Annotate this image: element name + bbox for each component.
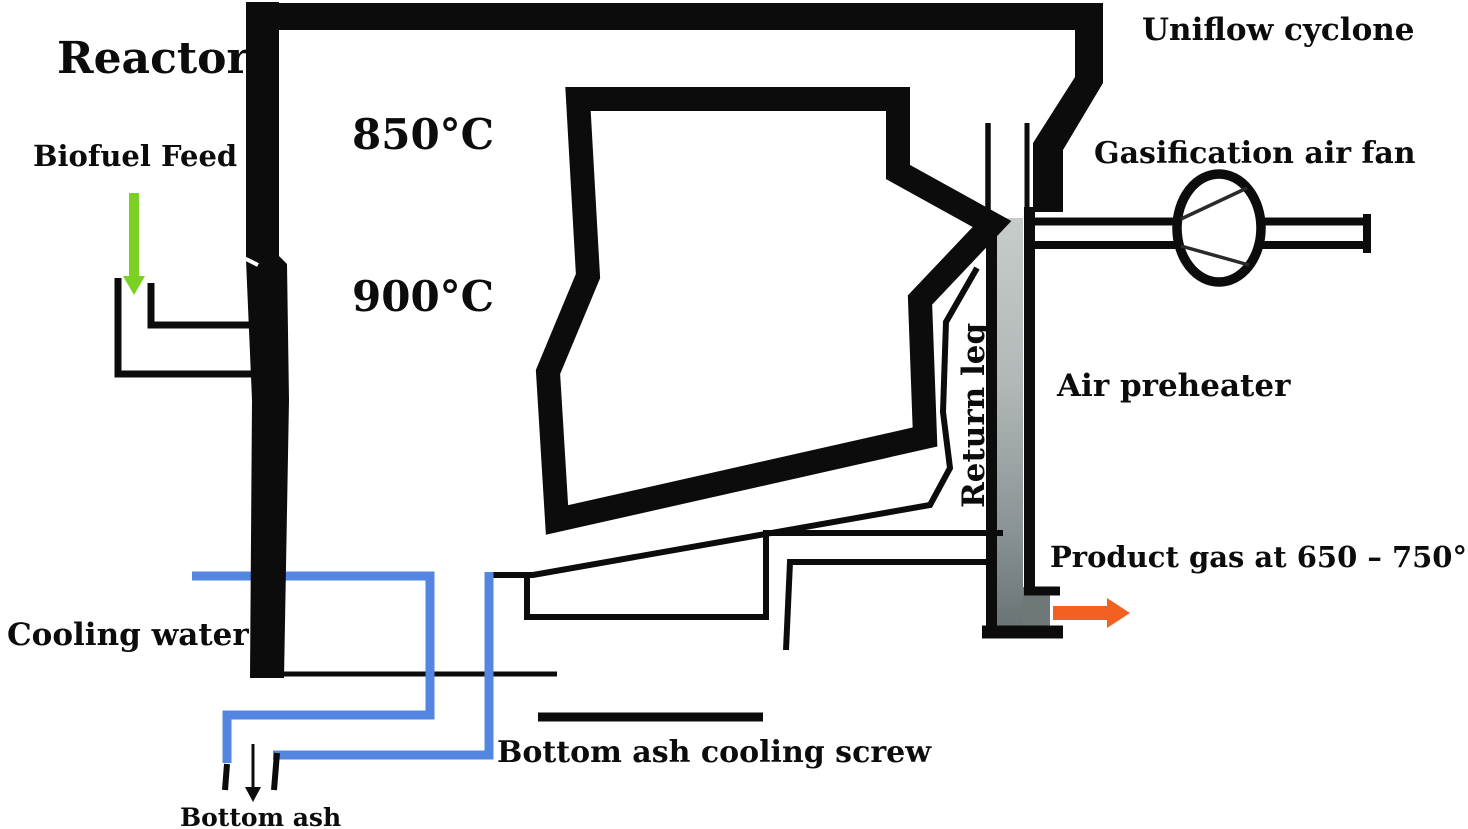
outlet-tick-right [274,753,277,790]
feed-chute-inner [151,283,253,325]
vessel-outline [548,99,992,520]
bottom-ash-label: Bottom ash [180,803,341,829]
diagram-canvas: Reactor Biofuel Feed 850°C 900°C Uniflow… [0,0,1468,829]
biofuel-feed-label: Biofuel Feed [33,139,237,173]
temp-900-label: 900°C [352,272,494,321]
bottom-ash-cooling-screw-label: Bottom ash cooling screw [497,735,932,770]
uniflow-cyclone-label: Uniflow cyclone [1142,12,1415,48]
cooling-water-pipe [192,572,489,763]
gasification-air-fan [1031,174,1367,282]
cooling-water-label: Cooling water [7,617,249,653]
cooling-water-pipe-lower [273,572,489,755]
bottom-ash-outlet [225,744,277,802]
air-preheater-label: Air preheater [1056,368,1291,404]
reactor-wall [246,2,289,678]
product-gas-arrow-icon [1053,598,1130,628]
air-preheater-column [997,218,1023,628]
product-gas-label: Product gas at 650 – 750°C [1050,540,1468,574]
return-leg-label: Return leg [956,323,992,508]
gasifier-diagram: Reactor Biofuel Feed 850°C 900°C Uniflow… [0,0,1468,829]
gasification-air-fan-label: Gasification air fan [1094,136,1416,171]
air-duct-line [786,562,996,650]
temp-850-label: 850°C [352,110,494,159]
cooling-water-pipe-upper [192,576,430,763]
biofuel-feed-arrow-icon [123,193,145,295]
outlet-tick-left [225,764,227,790]
loop-seal-pipe [527,533,1003,617]
bottom-ash-arrow-icon [245,787,261,802]
reactor-label: Reactor [57,33,251,84]
